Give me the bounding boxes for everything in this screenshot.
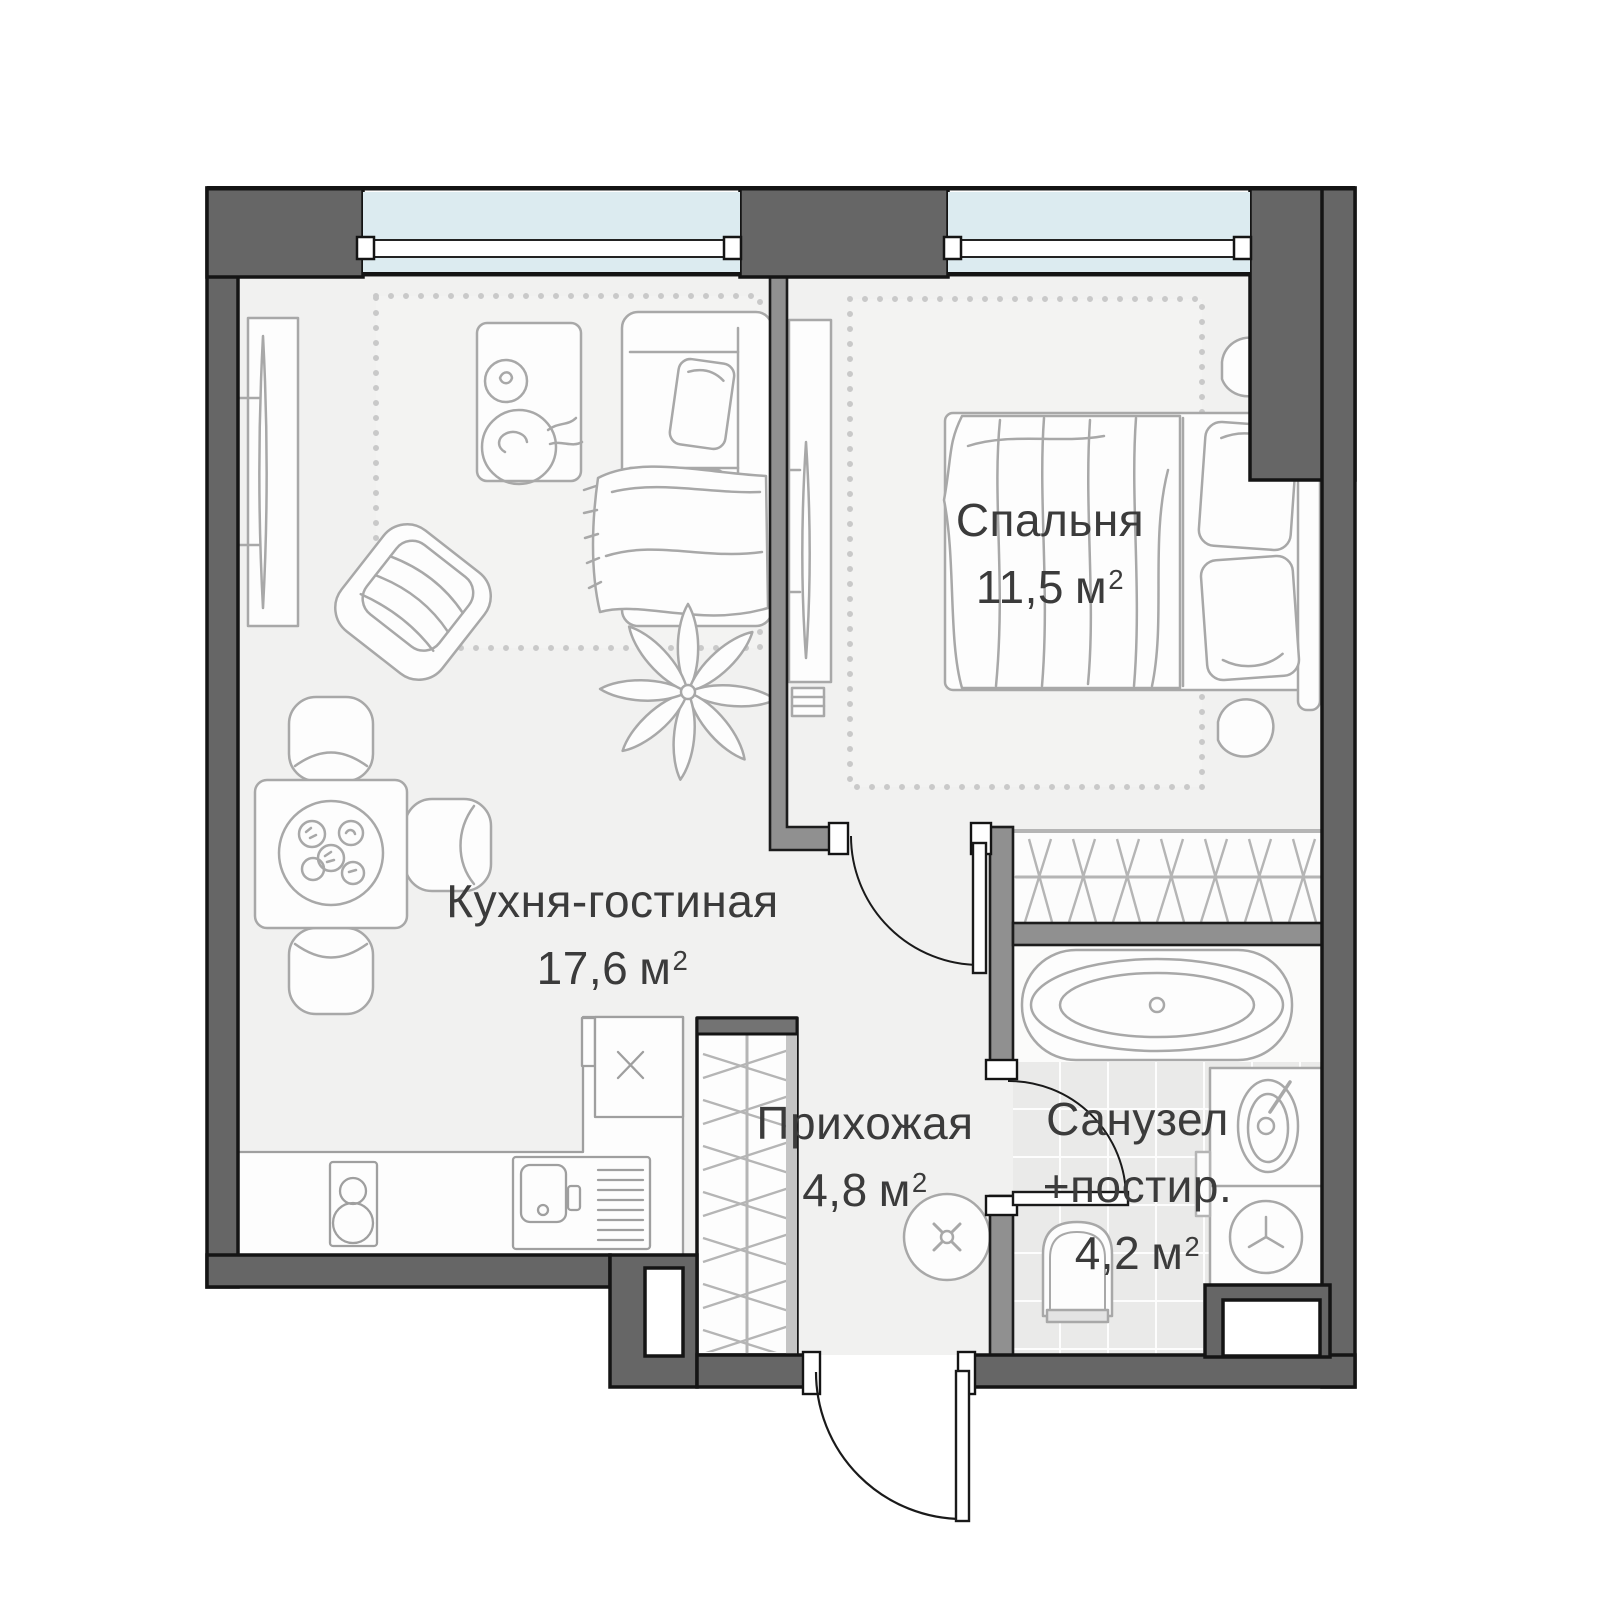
- room-area: 17,6м2: [440, 935, 785, 1002]
- dining-table: [255, 780, 407, 928]
- tv-console-living: [238, 318, 298, 626]
- cooktop: [330, 1162, 377, 1246]
- bedroom-wardrobe: [1013, 831, 1322, 924]
- dining-chair: [289, 928, 373, 1014]
- room-label-kitchen-living: Кухня-гостиная 17,6м2: [440, 868, 785, 1002]
- window-2: [948, 192, 1250, 274]
- room-name: Спальня: [900, 487, 1200, 554]
- shaft-niche: [1223, 1300, 1320, 1356]
- room-area: 11,5м2: [900, 554, 1200, 621]
- kitchen-sink: [513, 1157, 650, 1249]
- bathtub: [1022, 950, 1292, 1060]
- room-label-bathroom: Санузел +постир. 4,2м2: [1010, 1086, 1265, 1287]
- left-wall: [207, 188, 238, 1287]
- window-1: [363, 192, 740, 274]
- wardrobe-bath-wall: [1013, 923, 1322, 945]
- room-name-line2: +постир.: [1010, 1153, 1265, 1220]
- top-left-block: [207, 188, 363, 277]
- hall-bath-wall-upper: [990, 827, 1013, 1078]
- floor-plan: Спальня 11,5м2 Кухня-гостиная 17,6м2 При…: [0, 0, 1600, 1600]
- room-area: 4,8м2: [715, 1157, 1015, 1224]
- top-mid-pillar: [740, 188, 948, 277]
- room-label-bedroom: Спальня 11,5м2: [900, 487, 1200, 621]
- coffee-table: [477, 323, 582, 484]
- shaft-niche: [645, 1268, 683, 1356]
- room-area: 4,2м2: [1010, 1220, 1265, 1287]
- dining-chair: [289, 697, 373, 781]
- tall-cabinet: [595, 1017, 683, 1117]
- entrance-door: [803, 1352, 975, 1521]
- pillow: [1200, 555, 1300, 681]
- bottom-wall-kitchen: [207, 1255, 610, 1287]
- right-wall: [1322, 188, 1355, 1387]
- bedside-rug: [1218, 699, 1273, 756]
- floor-plan-drawing: [0, 0, 1600, 1600]
- room-name: Кухня-гостиная: [440, 868, 785, 935]
- tv-console-bedroom: [782, 320, 831, 716]
- room-name: Прихожая: [715, 1090, 1015, 1157]
- room-name: Санузел: [1010, 1086, 1265, 1153]
- bottom-wall-right: [965, 1355, 1355, 1387]
- bottom-wall-hall: [697, 1355, 813, 1387]
- room-label-hallway: Прихожая 4,8м2: [715, 1090, 1015, 1224]
